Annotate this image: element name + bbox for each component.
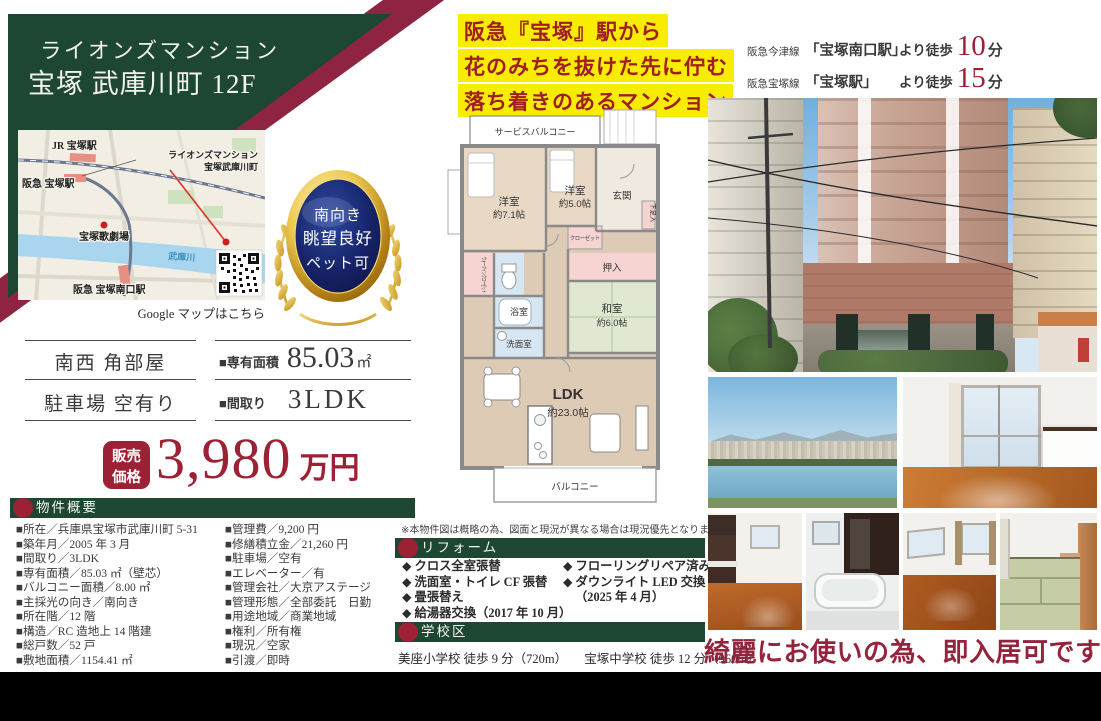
kitchen-photo <box>708 513 802 630</box>
cityscape <box>708 441 897 461</box>
room-bath-label: 浴室 <box>510 306 528 317</box>
map-caption: Google マップはこちら <box>18 303 265 322</box>
overview-item: ■引渡／即時 <box>225 654 420 669</box>
room-balcony-label: バルコニー <box>551 482 598 493</box>
reform-item: ◆ クロス全室張替 <box>402 559 560 575</box>
section-dot <box>13 498 33 518</box>
upper-cabinets <box>708 535 736 561</box>
catch-line-1: 阪急『宝塚』駅から <box>458 14 668 47</box>
floor-plan: サービスバルコニー <box>438 106 706 516</box>
access-walk: より徒歩 <box>899 71 953 91</box>
badge-text-2: 眺望良好 <box>303 229 373 248</box>
floorplan-note: ※本物件図は概略の為、図面と現況が異なる場合は現況優先となります。 <box>401 521 707 536</box>
spec-rule <box>25 379 196 380</box>
reform-col2: ◆ フローリングリペア済み ◆ ダウンライト LED 交換 （2025 年 4 … <box>563 559 708 606</box>
overview-item: ■バルコニー面積／8.00 ㎡ <box>16 581 218 596</box>
room-bedroom2-label: 洋室 <box>565 184 586 197</box>
living-room-photo <box>903 377 1097 508</box>
badge-text-3: ペット可 <box>306 256 370 272</box>
overview-item: ■権利／所有権 <box>225 625 420 640</box>
room-wic-label: ウォークインクローゼット <box>480 257 488 293</box>
spec-area-value: 85.03 <box>287 341 355 375</box>
spec-parking: 駐車場 空有り <box>25 389 196 416</box>
hankyu-station-label: 阪急 宝塚駅 <box>22 177 75 190</box>
access-row-1: 阪急今津線 「宝塚南口駅」 より徒歩 10 分 <box>747 30 1003 63</box>
catch-copy: 阪急『宝塚』駅から 花のみちを抜けた先に佇む 落ち着きのあるマンション <box>458 14 734 119</box>
balcony-window <box>961 385 1041 469</box>
reform-title: リフォーム <box>421 540 498 555</box>
river-surface <box>708 466 897 500</box>
reform-item: ◆ 畳張替え <box>402 590 560 606</box>
overview-left-column: ■所在／兵庫県宝塚市武庫川町 5-31 ■築年月／2005 年 3 月 ■間取り… <box>16 523 218 668</box>
room-service-balcony: サービスバルコニー <box>495 127 576 137</box>
school-elementary: 美座小学校 徒歩 9 分（720m） <box>398 652 567 666</box>
overview-item: ■修繕積立金／21,260 円 <box>225 538 420 553</box>
overview-item: ■管理形態／全部委託 日勤 <box>225 596 420 611</box>
overview-item: ■構造／RC 造地上 14 階建 <box>16 625 218 640</box>
qr-code <box>216 250 262 296</box>
overview-item: ■管理会社／大京アステージ <box>225 581 420 596</box>
spec-rule <box>25 340 196 341</box>
access-unit: 分 <box>988 39 1003 60</box>
river-bank-trees <box>708 459 897 466</box>
property-dot <box>223 239 230 246</box>
river-label: 武庫川 <box>168 250 196 263</box>
bedroom-photo <box>903 513 996 630</box>
section-dot <box>398 538 418 558</box>
property-title-line1: ライオンズマンション <box>40 34 280 65</box>
access-station: 「宝塚南口駅」 <box>805 39 899 60</box>
location-map: 武庫川 JR 宝塚駅 阪急 宝塚駅 ライオンズマンション 宝塚武庫川町 宝塚歌劇… <box>18 130 265 300</box>
price-badge: 販売 価格 <box>103 441 150 489</box>
room-genkan-label: 玄関 <box>612 190 631 202</box>
bath-window <box>812 521 840 545</box>
overview-item: ■エレベーター／有 <box>225 567 420 582</box>
kitchen-window <box>750 525 780 549</box>
reform-item: ◆ フローリングリペア済み <box>563 559 708 575</box>
building-exterior-photo <box>708 98 1097 372</box>
bathroom-photo <box>806 513 899 630</box>
foreground-reeds <box>708 498 897 508</box>
spec-layout-row: ■間取り 3LDK <box>219 384 411 415</box>
school-row: 美座小学校 徒歩 9 分（720m） 宝塚中学校 徒歩 12 分（960m） <box>398 648 708 667</box>
room-ldk-size: 約23.0帖 <box>547 406 589 419</box>
bath-floor <box>806 611 899 630</box>
theater-label: 宝塚歌劇場 <box>79 230 129 243</box>
overview-item: ■敷地面積／1154.41 ㎡ <box>16 654 218 669</box>
room-washitsu-label: 和室 <box>602 302 623 315</box>
tatami-room-photo <box>1000 513 1097 630</box>
access-line-name: 阪急宝塚線 <box>747 76 805 91</box>
spec-area-unit: ㎡ <box>356 351 371 372</box>
overview-item: ■専有面積／85.03 ㎡（壁芯） <box>16 567 218 582</box>
room-closet-label: クローゼット <box>570 234 600 242</box>
bottom-black-bar <box>0 672 1101 721</box>
spec-area-label: ■専有面積 <box>219 352 279 371</box>
price-value: 3,980 <box>156 425 292 492</box>
move-in-note: 綺麗にお使いの為、即入居可です <box>704 632 1097 669</box>
reform-section-bar: リフォーム <box>395 538 705 558</box>
curtain <box>989 521 996 565</box>
overview-item: ■駐車場／空有 <box>225 552 420 567</box>
wood-pillar <box>1078 523 1097 630</box>
badge-text-1: 南向き <box>314 207 362 224</box>
room-oshiire-label: 押入 <box>602 262 622 274</box>
price-badge-line2: 価格 <box>103 468 150 489</box>
overview-section-bar: 物件概要 <box>10 498 415 518</box>
access-station: 「宝塚駅」 <box>805 71 899 92</box>
jr-station-label: JR 宝塚駅 <box>52 139 98 152</box>
price-value-row: 3,980 万円 <box>156 425 360 492</box>
price-unit: 万円 <box>300 443 360 487</box>
power-lines <box>708 98 1097 372</box>
overview-item: ■用途地域／商業地域 <box>225 610 420 625</box>
access-line-name: 阪急今津線 <box>747 44 805 59</box>
spec-area-row: ■専有面積 85.03 ㎡ <box>219 341 411 375</box>
school-title: 学校区 <box>421 624 468 639</box>
room-shoebox-label: 下足入 <box>649 203 657 223</box>
spec-layout-value: 3LDK <box>288 384 369 415</box>
access-walk: より徒歩 <box>899 39 953 59</box>
overview-item: ■総戸数／52 戸 <box>16 639 218 654</box>
real-estate-flyer: ライオンズマンション 宝塚 武庫川町 12F 武庫川 <box>0 0 1101 721</box>
view-photo <box>708 377 897 508</box>
overview-right-column: ■管理費／9,200 円 ■修繕積立金／21,260 円 ■駐車場／空有 ■エレ… <box>225 523 420 668</box>
spec-position: 南西 角部屋 <box>25 348 196 375</box>
reform-item: ◆ 洗面室・トイレ CF 張替 <box>402 575 560 591</box>
reform-col1: ◆ クロス全室張替 ◆ 洗面室・トイレ CF 張替 ◆ 畳張替え ◆ 給湯器交換… <box>402 559 560 621</box>
spec-rule <box>25 420 196 421</box>
theater-dot <box>101 222 108 229</box>
school-section-bar: 学校区 <box>395 622 705 642</box>
overview-item: ■現況／空家 <box>225 639 420 654</box>
bedroom-window-left <box>907 527 945 559</box>
overview-item: ■所在階／12 階 <box>16 610 218 625</box>
access-unit: 分 <box>988 71 1003 92</box>
room-bedroom1-size: 約7.1帖 <box>493 209 526 221</box>
property-map-label-2: 宝塚武庫川町 <box>204 161 258 172</box>
overview-item: ■管理費／9,200 円 <box>225 523 420 538</box>
access-row-2: 阪急宝塚線 「宝塚駅」 より徒歩 15 分 <box>747 62 1003 95</box>
overview-title: 物件概要 <box>36 500 98 515</box>
spec-rule <box>215 420 411 421</box>
closet-edge <box>1000 519 1010 579</box>
room-bedroom2-size: 約5.0帖 <box>559 198 592 210</box>
room-washitsu-size: 約6.0帖 <box>597 317 628 328</box>
overview-item: ■間取り／3LDK <box>16 552 218 567</box>
overview-item: ■主採光の向き／南向き <box>16 596 218 611</box>
price-badge-line1: 販売 <box>103 447 150 468</box>
spec-layout-label: ■間取り <box>219 393 266 412</box>
access-minutes: 15 <box>957 62 986 95</box>
room-ldk-label: LDK <box>553 386 584 403</box>
minamiguchi-station-label: 阪急 宝塚南口駅 <box>73 283 146 296</box>
access-minutes: 10 <box>957 30 986 63</box>
room-washroom-label: 洗面室 <box>506 339 532 349</box>
range-hood <box>708 515 736 535</box>
reform-item: （2025 年 4 月） <box>575 590 708 606</box>
reform-item: ◆ ダウンライト LED 交換 <box>563 575 708 591</box>
property-map-label-1: ライオンズマンション <box>168 149 258 160</box>
room-bedroom1-label: 洋室 <box>499 195 520 208</box>
section-dot <box>398 622 418 642</box>
overview-item: ■築年月／2005 年 3 月 <box>16 538 218 553</box>
property-title-line2: 宝塚 武庫川町 12F <box>28 62 257 101</box>
jr-takarazuka-station-marker <box>70 153 96 162</box>
curtain <box>949 383 961 471</box>
curtain <box>955 521 962 565</box>
reform-item: ◆ 給湯器交換（2017 年 10 月） <box>402 606 560 622</box>
catch-line-2: 花のみちを抜けた先に佇む <box>458 49 734 82</box>
gold-swoosh <box>300 314 376 325</box>
feature-medal-badge: 南向き 眺望良好 ペット可 <box>266 156 410 328</box>
spec-rule <box>215 379 411 380</box>
overview-item: ■所在／兵庫県宝塚市武庫川町 5-31 <box>16 523 218 538</box>
